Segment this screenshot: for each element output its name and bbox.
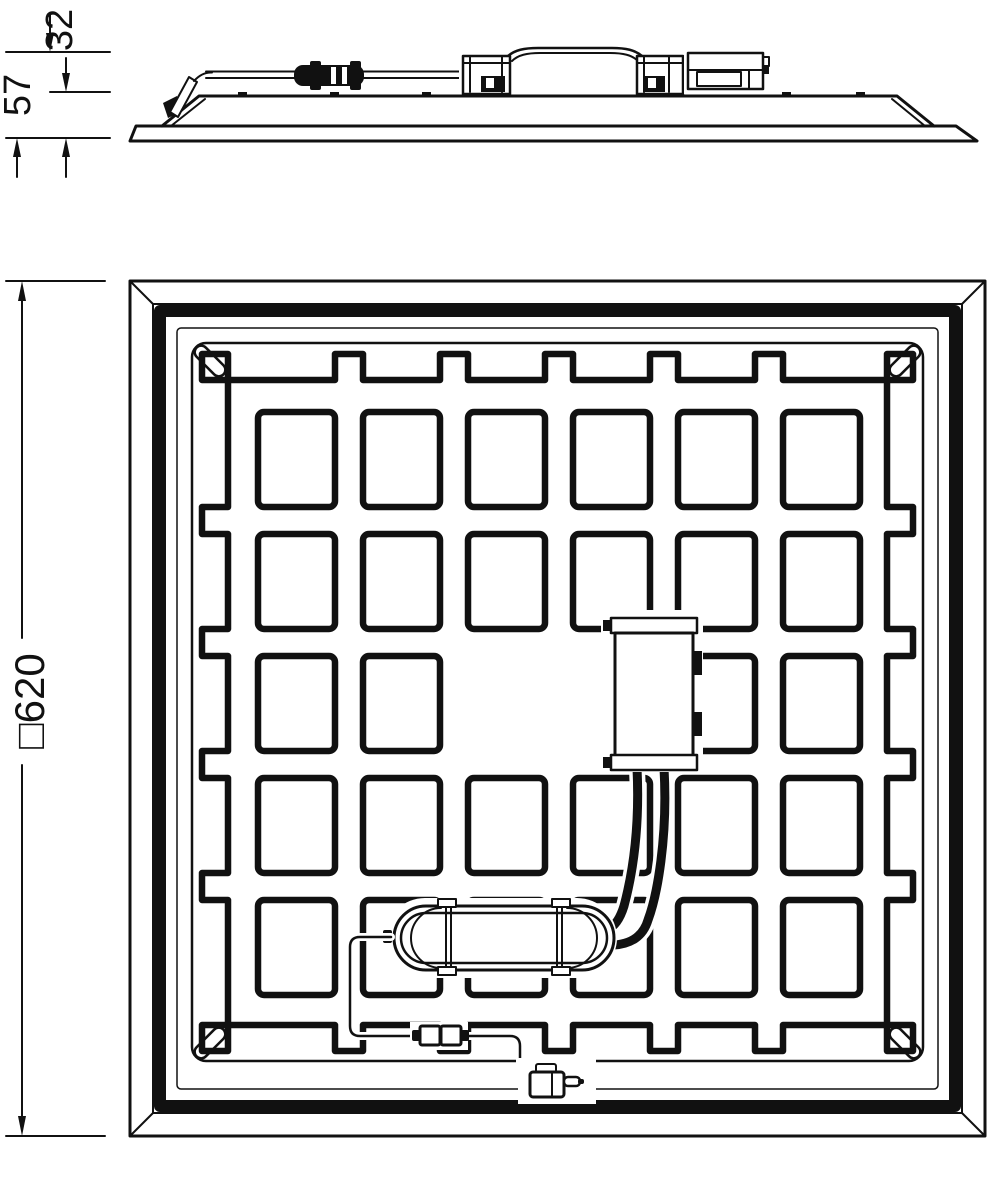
grid-cell [468, 778, 545, 873]
grid-cell [258, 900, 335, 995]
arrow-down-icon [18, 1116, 26, 1136]
driver-cables [608, 768, 665, 945]
grid-cell [783, 656, 860, 751]
arrow-up-icon [62, 138, 70, 157]
grid-cell [783, 900, 860, 995]
arrow-down-icon [62, 73, 70, 92]
grid-cell [783, 534, 860, 629]
grid-cell [363, 534, 440, 629]
grid-cell [363, 656, 440, 751]
grid-cell [573, 412, 650, 507]
arrow-up-icon [13, 138, 21, 157]
grid-cell [678, 778, 755, 873]
panel-flange-profile [130, 126, 977, 141]
driver-terminal [693, 712, 702, 736]
panel-body-profile [162, 96, 934, 126]
panel-body-inner-edges [171, 99, 925, 126]
grid-cell [678, 412, 755, 507]
dimension-drawing: 57 32 [0, 0, 997, 1200]
grid-cell [363, 412, 440, 507]
cable-1 [608, 768, 638, 929]
drawing-svg: 57 32 [0, 0, 997, 1200]
wiring-capsule [385, 898, 617, 978]
terminal-box-side [684, 48, 770, 94]
frame-bezel-inner-edge [153, 304, 962, 1113]
front-view: □620 [6, 281, 985, 1136]
grid-cell [258, 656, 335, 751]
grid-cell [258, 778, 335, 873]
arrow-up-icon [18, 281, 26, 301]
dim-label-57: 57 [0, 74, 39, 116]
side-view: 57 32 [0, 9, 977, 177]
led-driver-side [459, 44, 691, 94]
grid-cell [258, 412, 335, 507]
grid-cell [678, 900, 755, 995]
grid-cell [258, 534, 335, 629]
driver-terminal [693, 651, 702, 675]
grid-cell [363, 778, 440, 873]
inline-connector [410, 1022, 469, 1050]
cable-elbow [194, 72, 212, 81]
frame-gasket-band [160, 311, 955, 1106]
grid-cell [468, 412, 545, 507]
driver-box [601, 610, 703, 772]
grid-cell [783, 778, 860, 873]
dimension-32: 32 [39, 9, 110, 177]
dim-label-620: □620 [6, 653, 53, 748]
dimension-620: □620 [6, 281, 105, 1136]
inline-cable-connector-side [294, 61, 364, 90]
dim-label-32: 32 [39, 9, 81, 51]
grid-cell [783, 412, 860, 507]
grid-cell [468, 534, 545, 629]
mains-plug [518, 1058, 596, 1104]
mounting-clip [163, 77, 197, 118]
